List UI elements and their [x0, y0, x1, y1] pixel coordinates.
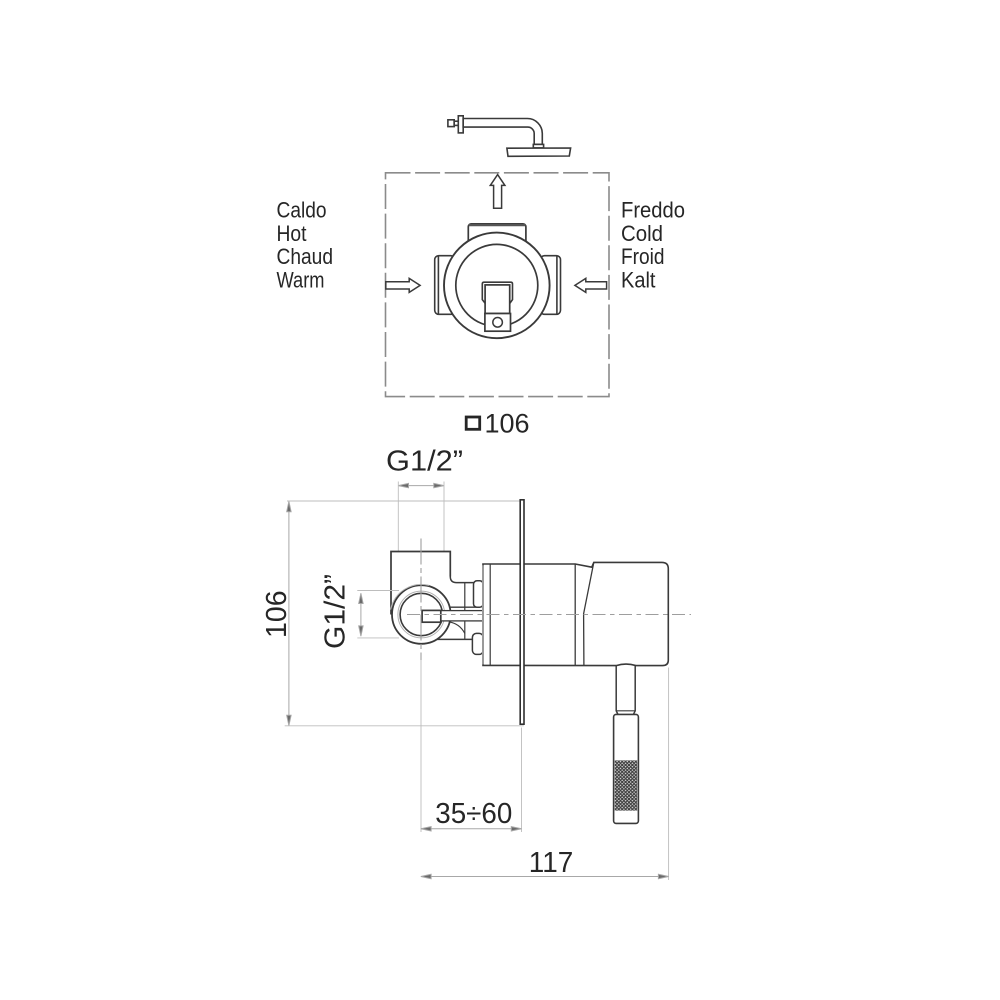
- svg-text:106: 106: [485, 409, 530, 439]
- svg-text:Warm: Warm: [277, 268, 325, 293]
- svg-text:106: 106: [261, 590, 293, 638]
- svg-text:Freddo: Freddo: [621, 198, 685, 223]
- svg-text:Hot: Hot: [277, 221, 307, 246]
- svg-text:Kalt: Kalt: [621, 268, 656, 293]
- svg-text:G1/2”: G1/2”: [386, 446, 463, 478]
- svg-text:G1/2”: G1/2”: [320, 574, 352, 649]
- svg-text:Cold: Cold: [621, 221, 663, 246]
- svg-text:35÷60: 35÷60: [435, 798, 512, 830]
- svg-text:Froid: Froid: [621, 244, 665, 269]
- svg-text:Chaud: Chaud: [277, 244, 334, 269]
- svg-text:Caldo: Caldo: [277, 198, 327, 223]
- svg-text:117: 117: [529, 847, 574, 879]
